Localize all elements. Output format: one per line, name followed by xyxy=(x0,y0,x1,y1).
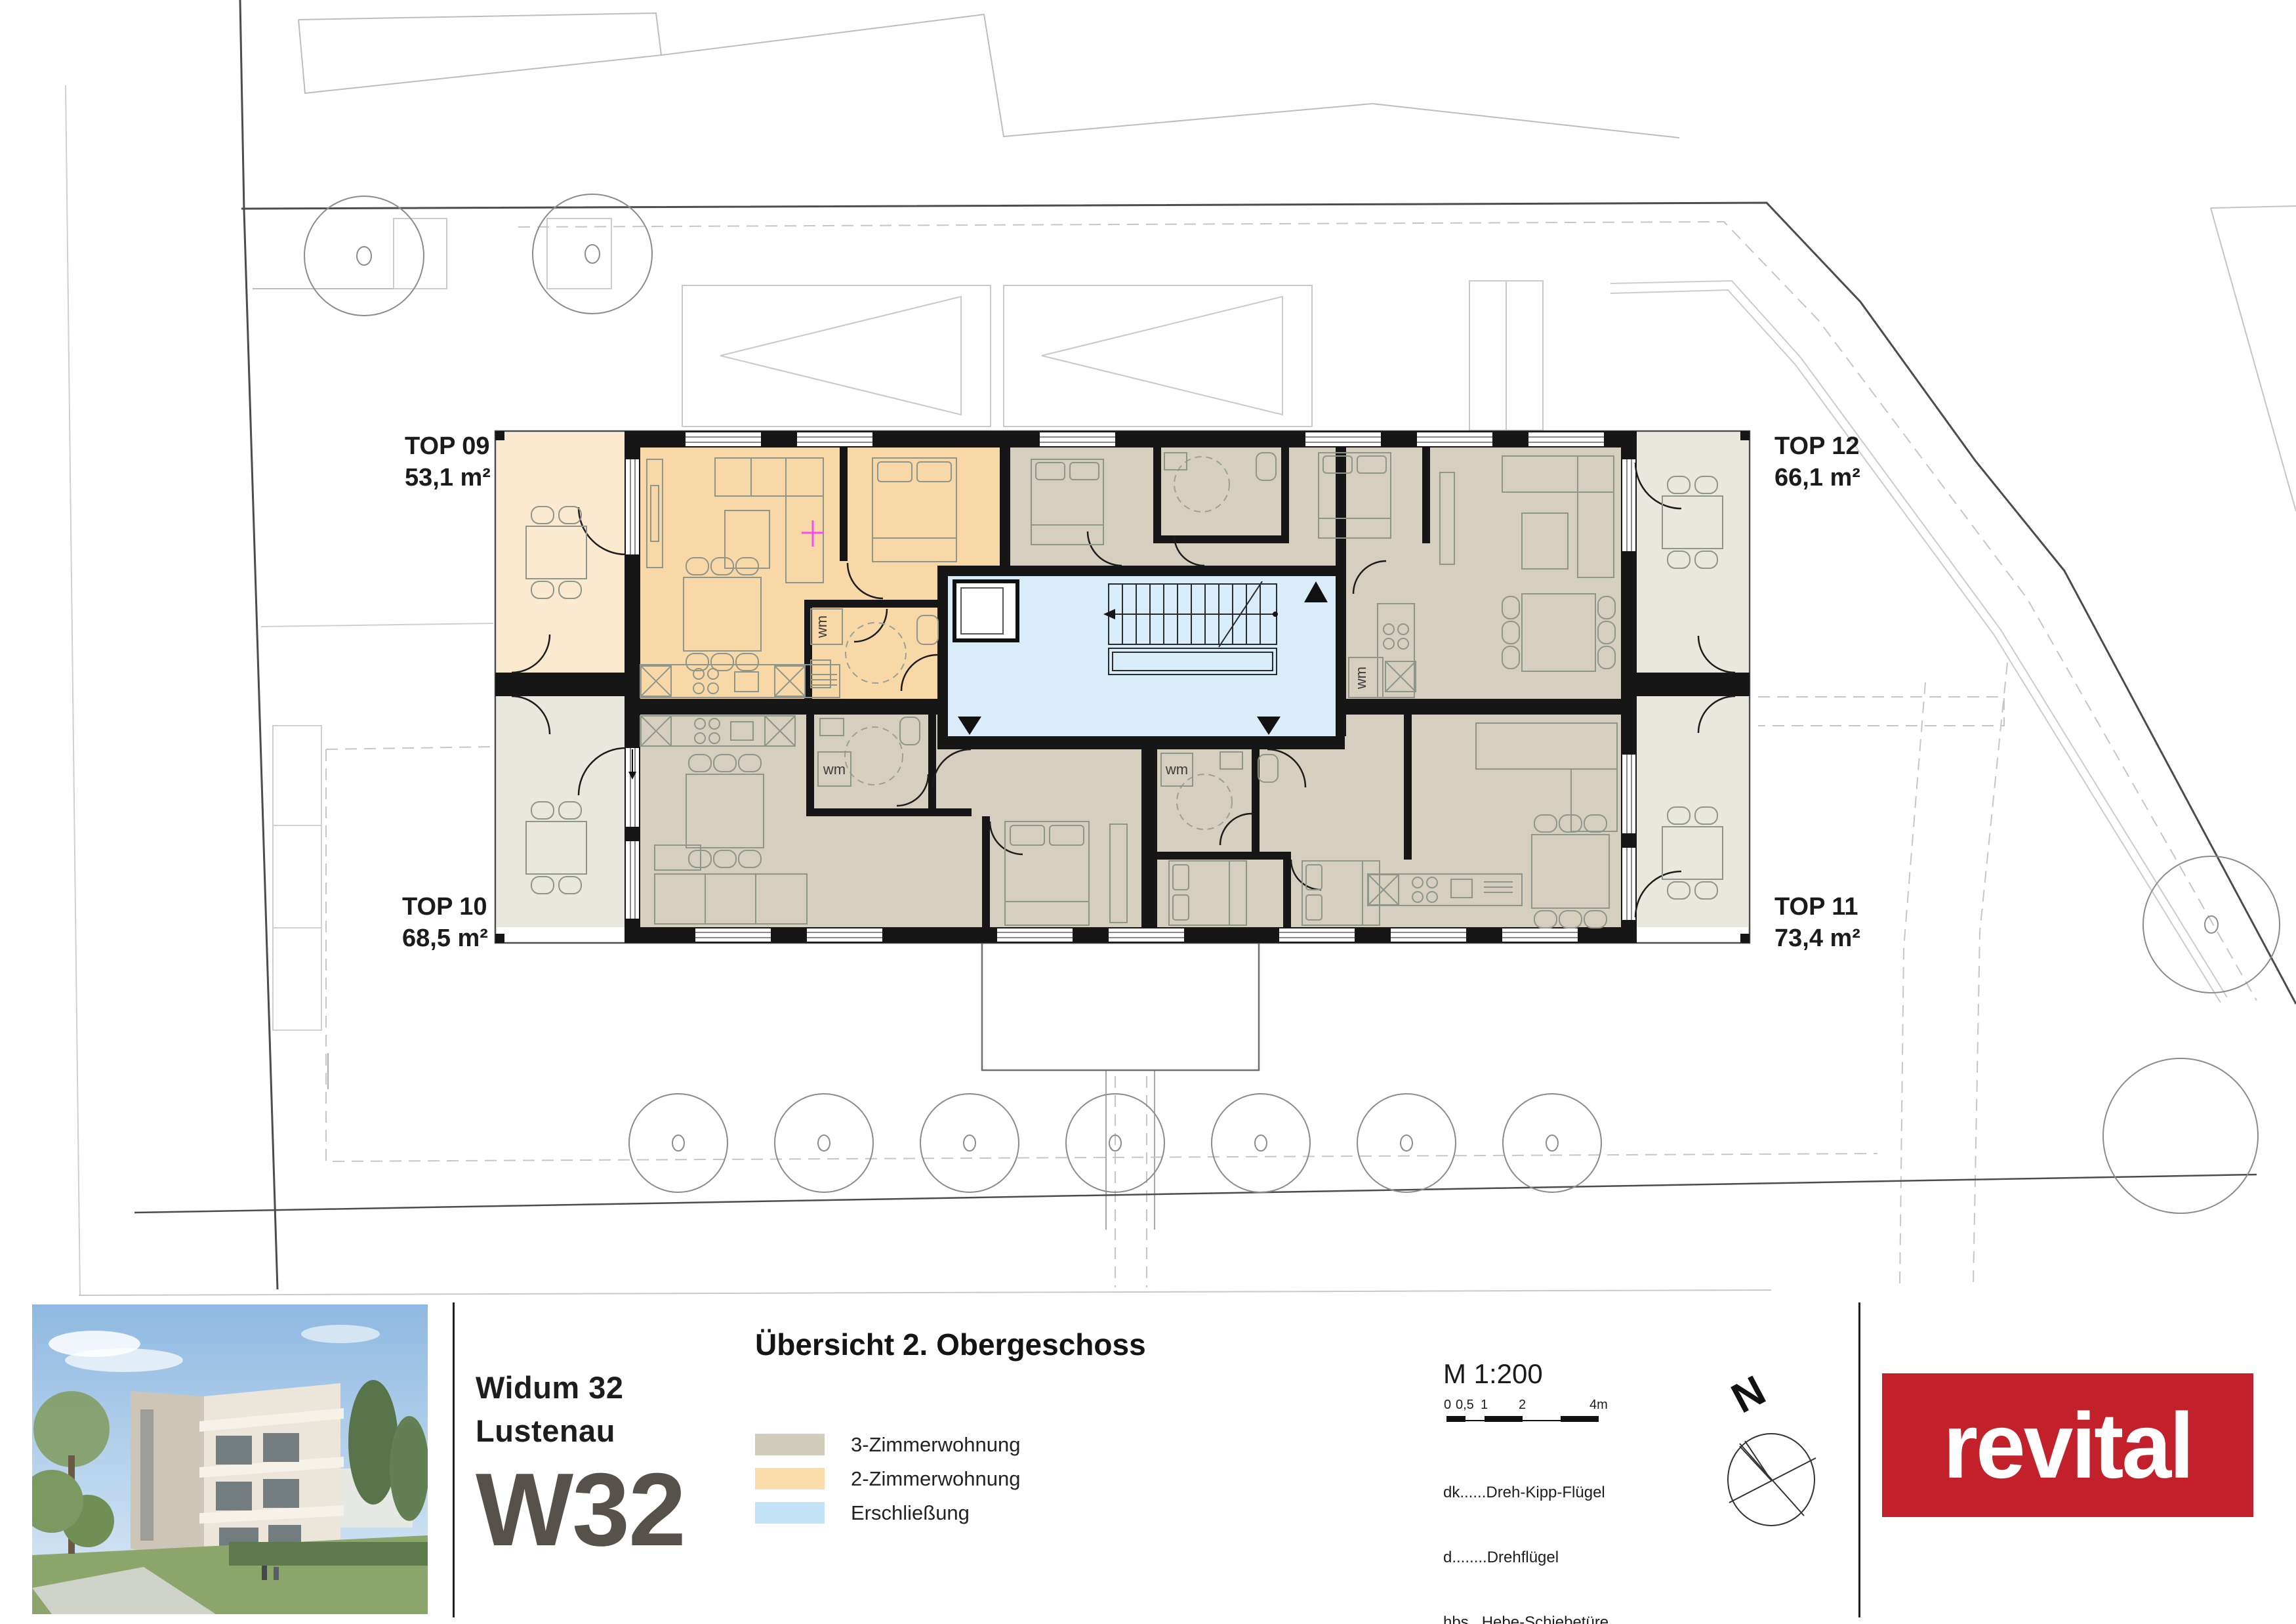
scale-block: M 1:200 xyxy=(1443,1358,1719,1390)
scale-tick-1: 1 xyxy=(1481,1398,1488,1413)
north-letter: N xyxy=(1724,1366,1773,1422)
wm-label-top10: wm xyxy=(823,761,846,778)
project-block: Widum 32 Lustenau W32 xyxy=(476,1366,685,1559)
unit-label-top09: TOP 09 xyxy=(405,432,490,460)
footer-divider-right xyxy=(1858,1302,1860,1617)
area-top12-loggia xyxy=(1637,432,1748,673)
scale-tick-2: 2 xyxy=(1519,1398,1526,1413)
unit-area-top12: 66,1 m² xyxy=(1774,464,1860,491)
unit-area-top10: 68,5 m² xyxy=(402,925,488,952)
wm-label-top12: wm xyxy=(1353,667,1369,690)
unit-label-top11: TOP 11 xyxy=(1774,893,1858,921)
unit-area-top11: 73,4 m² xyxy=(1774,925,1860,952)
legend-swatch-2zimmer xyxy=(755,1468,825,1489)
scale-tick-4m: 4m xyxy=(1589,1398,1608,1413)
scale-tick-0: 0 xyxy=(1444,1398,1451,1413)
area-top09-balcony xyxy=(497,432,625,673)
wm-label-top09: wm xyxy=(813,615,830,638)
wm-label-top11: wm xyxy=(1165,761,1188,778)
apartment-areas xyxy=(497,432,1748,927)
project-name-line1: Widum 32 xyxy=(476,1366,685,1409)
project-code: W32 xyxy=(476,1461,685,1559)
legend-label-2zimmer: 2-Zimmerwohnung xyxy=(851,1467,1020,1491)
legend-swatch-3zimmer xyxy=(755,1434,825,1455)
unit-area-top09: 53,1 m² xyxy=(405,464,491,491)
legend-row-2zimmer: 2-Zimmerwohnung xyxy=(755,1468,1020,1489)
compass-icon xyxy=(1728,1434,1816,1526)
legend-row-3zimmer: 3-Zimmerwohnung xyxy=(755,1434,1020,1455)
scale-tick-05: 0,5 xyxy=(1456,1398,1474,1413)
scale-bar: 0 0,5 1 2 4m xyxy=(1446,1398,1604,1424)
legend-label-3zimmer: 3-Zimmerwohnung xyxy=(851,1433,1020,1457)
revital-logo-text: revital xyxy=(1943,1392,2192,1498)
legend-label-erschliessung: Erschließung xyxy=(851,1501,970,1525)
project-name-line2: Lustenau xyxy=(476,1409,685,1453)
revital-logo: revital xyxy=(1882,1373,2253,1517)
plan-sheet: wm wm wm wm TOP 09 53,1 m² TOP 12 66,1 m… xyxy=(0,0,2296,1624)
entrance-porch xyxy=(982,943,1259,1070)
legend-swatch-erschliessung xyxy=(755,1502,825,1524)
legend: 3-Zimmerwohnung 2-Zimmerwohnung Erschlie… xyxy=(755,1434,1020,1536)
scale-title: M 1:200 xyxy=(1443,1358,1719,1390)
abbrev-d: d........Drehflügel xyxy=(1443,1547,1609,1568)
unit-label-top12: TOP 12 xyxy=(1774,432,1860,460)
abbrev-dk: dk......Dreh-Kipp-Flügel xyxy=(1443,1482,1609,1503)
elevator xyxy=(954,581,1017,640)
floorplan-drawing: wm wm wm wm TOP 09 53,1 m² TOP 12 66,1 m… xyxy=(0,0,2296,1299)
building-photo xyxy=(32,1304,428,1614)
unit-label-top10: TOP 10 xyxy=(402,893,487,921)
abbrev-hbs: hbs...Hebe-Schiebetüre xyxy=(1443,1612,1609,1624)
legend-row-erschliessung: Erschließung xyxy=(755,1502,1020,1524)
north-indicator: N xyxy=(1679,1352,1850,1572)
area-top10-balcony xyxy=(497,696,625,927)
footer-divider-left xyxy=(453,1302,455,1617)
area-top11-loggia xyxy=(1637,696,1748,927)
abbreviation-list: dk......Dreh-Kipp-Flügel d........Drehfl… xyxy=(1443,1438,1609,1624)
sheet-title: Übersicht 2. Obergeschoss xyxy=(755,1327,1146,1362)
scale-bar-graphic xyxy=(1446,1413,1604,1423)
